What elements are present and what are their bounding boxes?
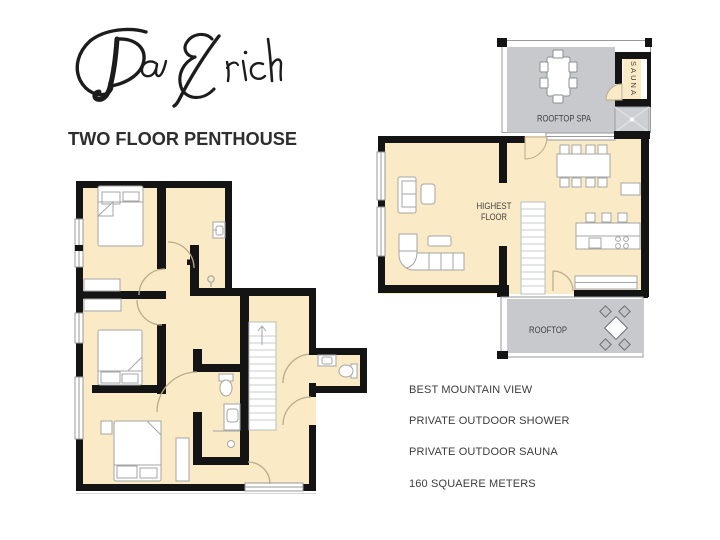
svg-text:FLOOR: FLOOR bbox=[481, 212, 507, 222]
svg-text:BEST MOUNTAIN VIEW: BEST MOUNTAIN VIEW bbox=[409, 384, 533, 396]
svg-text:PRIVATE OUTDOOR SHOWER: PRIVATE OUTDOOR SHOWER bbox=[409, 415, 570, 427]
svg-text:PRIVATE OUTDOOR SAUNA: PRIVATE OUTDOOR SAUNA bbox=[409, 446, 558, 458]
svg-text:TWO FLOOR PENTHOUSE: TWO FLOOR PENTHOUSE bbox=[68, 129, 297, 149]
svg-text:HIGHEST: HIGHEST bbox=[477, 201, 512, 211]
svg-text:ROOFTOP SPA: ROOFTOP SPA bbox=[537, 114, 591, 124]
svg-text:160 SQUAERE METERS: 160 SQUAERE METERS bbox=[409, 478, 536, 490]
svg-text:ROOFTOP: ROOFTOP bbox=[529, 325, 567, 335]
